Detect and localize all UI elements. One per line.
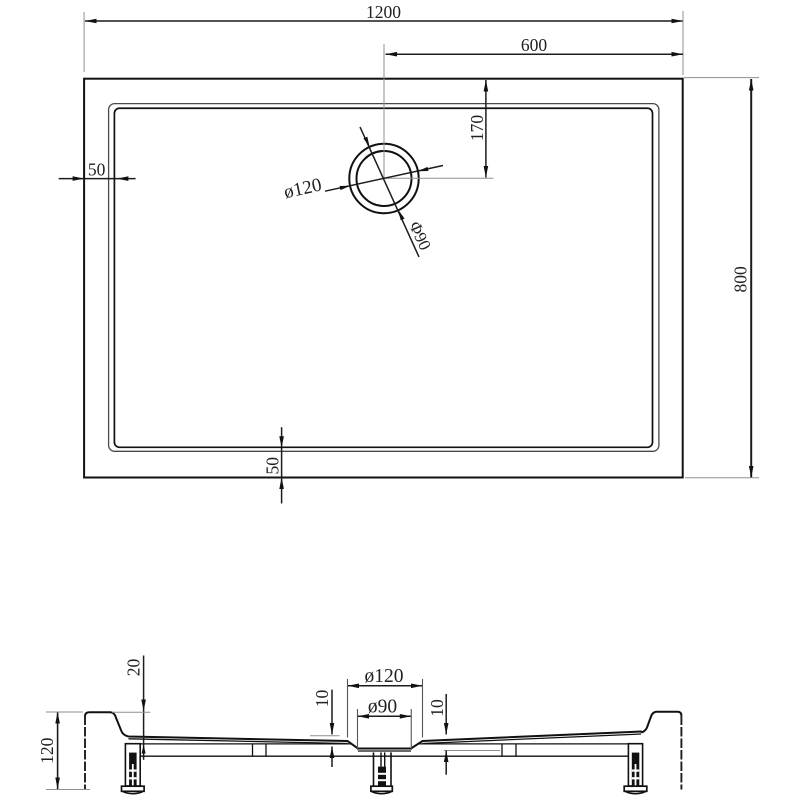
svg-text:170: 170 (467, 115, 487, 142)
svg-text:10: 10 (312, 690, 332, 708)
svg-text:600: 600 (521, 35, 548, 55)
svg-text:ø120: ø120 (365, 666, 404, 687)
svg-text:10: 10 (427, 699, 447, 717)
svg-text:50: 50 (88, 160, 106, 180)
svg-text:120: 120 (37, 737, 57, 764)
svg-text:1200: 1200 (366, 2, 401, 22)
svg-text:800: 800 (730, 266, 750, 293)
svg-text:ø90: ø90 (368, 696, 397, 717)
svg-text:20: 20 (124, 659, 144, 677)
svg-text:50: 50 (262, 457, 282, 475)
